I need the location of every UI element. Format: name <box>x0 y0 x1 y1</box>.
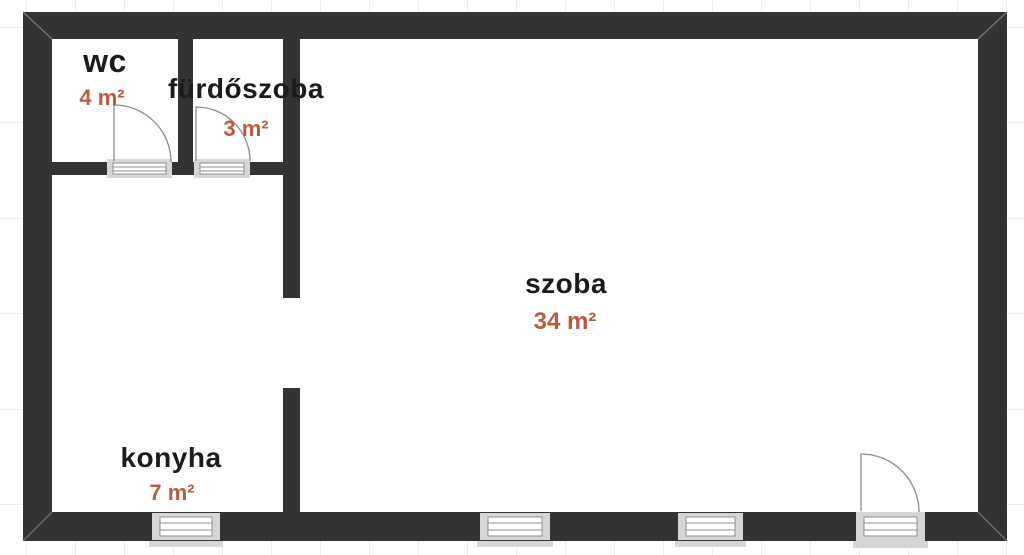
wall-left <box>23 12 52 541</box>
room-area-room: 34 m² <box>534 310 597 334</box>
floor-plan: wc 4 m² fürdőszoba 3 m² szoba 34 m² kony… <box>0 0 1024 555</box>
kitchen-window-sill <box>149 541 223 547</box>
room-window-right-glass <box>686 517 735 536</box>
room-window-right-sill <box>675 541 746 547</box>
wall-wc-bathroom-divider <box>178 39 193 175</box>
entrance-door-leaf-panel <box>864 517 917 536</box>
wall-hall-horizontal <box>52 162 300 175</box>
room-window-left <box>477 513 553 547</box>
room-label-kitchen: konyha <box>120 444 221 472</box>
room-label-bathroom: fürdőszoba <box>168 75 324 103</box>
wc-door-leaf-panel <box>113 163 166 174</box>
room-area-bathroom: 3 m² <box>223 118 268 140</box>
room-label-wc: wc <box>83 45 127 77</box>
entrance-door-sill <box>853 541 928 548</box>
room-area-wc: 4 m² <box>79 87 124 109</box>
room-area-kitchen: 7 m² <box>149 482 194 504</box>
room-window-right <box>675 513 746 547</box>
kitchen-window-glass <box>160 517 212 536</box>
bathroom-door-leaf-panel <box>200 163 244 174</box>
room-window-left-sill <box>477 541 553 547</box>
room-window-left-glass <box>488 517 542 536</box>
wall-hall-room-lower <box>283 388 300 512</box>
wall-top <box>23 12 1007 39</box>
kitchen-window <box>149 513 223 547</box>
wall-right <box>978 12 1007 541</box>
room-label-room: szoba <box>525 270 607 298</box>
